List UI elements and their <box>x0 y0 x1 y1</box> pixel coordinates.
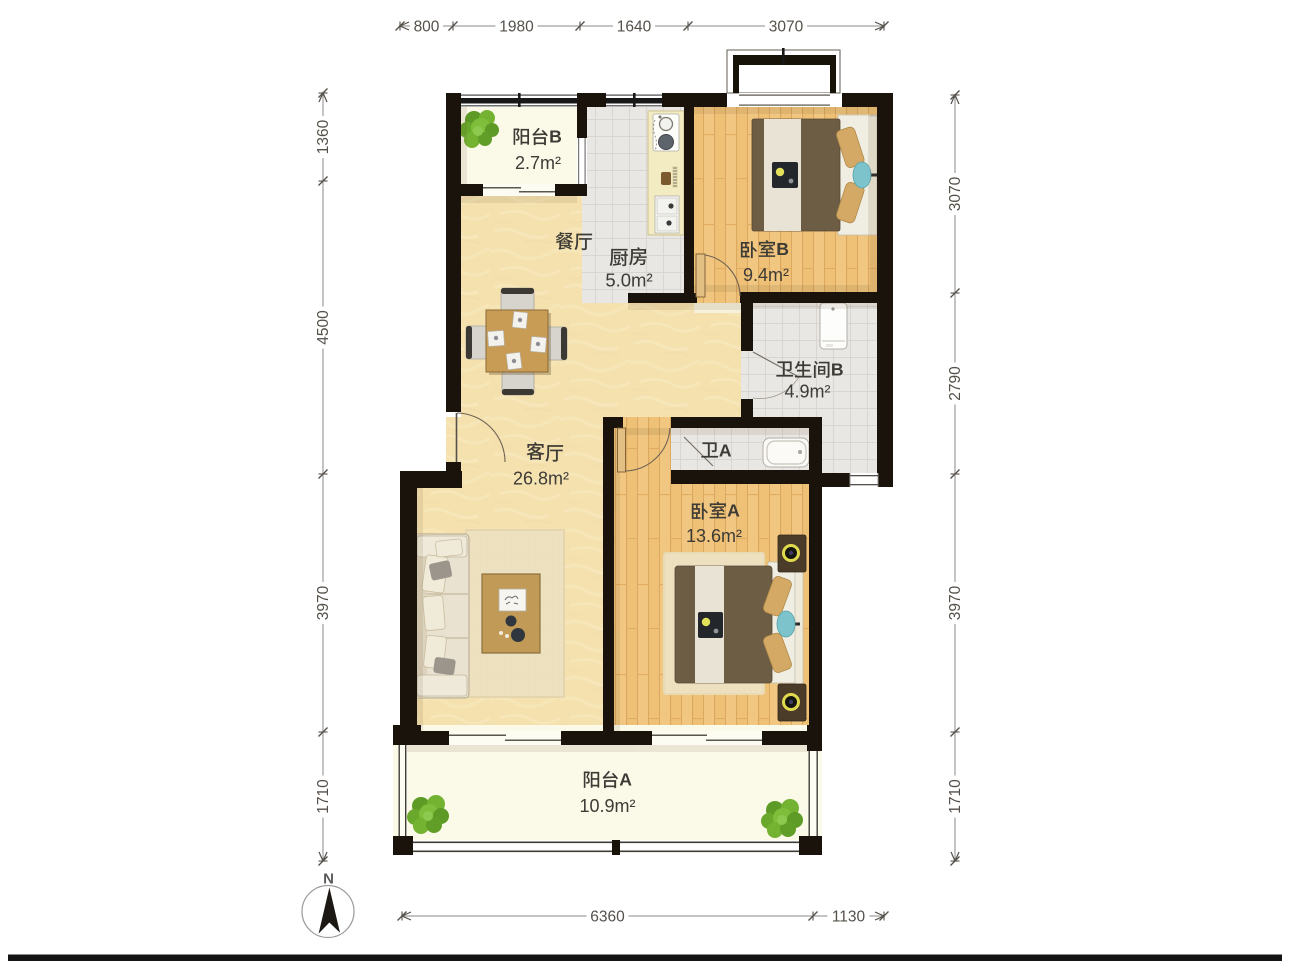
svg-text:1710: 1710 <box>315 779 332 814</box>
svg-text:10.9m²: 10.9m² <box>579 796 635 816</box>
svg-text:3070: 3070 <box>947 176 964 211</box>
svg-text:26.8m²: 26.8m² <box>513 469 569 489</box>
svg-text:9.4m²: 9.4m² <box>743 265 789 285</box>
svg-text:2790: 2790 <box>947 366 964 401</box>
svg-text:1640: 1640 <box>617 19 652 36</box>
svg-text:1980: 1980 <box>499 19 534 36</box>
svg-text:B: B <box>776 239 789 259</box>
svg-text:B: B <box>549 127 562 147</box>
svg-text:A: A <box>719 441 732 461</box>
svg-text:3070: 3070 <box>769 19 804 36</box>
svg-text:1710: 1710 <box>947 779 964 814</box>
svg-text:13.6m²: 13.6m² <box>686 526 742 546</box>
svg-text:3970: 3970 <box>947 585 964 620</box>
svg-text:3970: 3970 <box>315 585 332 620</box>
svg-text:800: 800 <box>414 19 440 36</box>
svg-text:B: B <box>831 360 844 380</box>
svg-text:1130: 1130 <box>832 909 866 926</box>
svg-text:4.9m²: 4.9m² <box>784 382 830 402</box>
svg-text:A: A <box>619 770 632 790</box>
svg-text:6360: 6360 <box>590 909 625 926</box>
svg-text:5.0m²: 5.0m² <box>605 270 652 291</box>
svg-text:1360: 1360 <box>315 119 332 154</box>
svg-text:4500: 4500 <box>315 310 332 345</box>
svg-text:A: A <box>727 501 740 521</box>
svg-text:2.7m²: 2.7m² <box>515 153 561 173</box>
